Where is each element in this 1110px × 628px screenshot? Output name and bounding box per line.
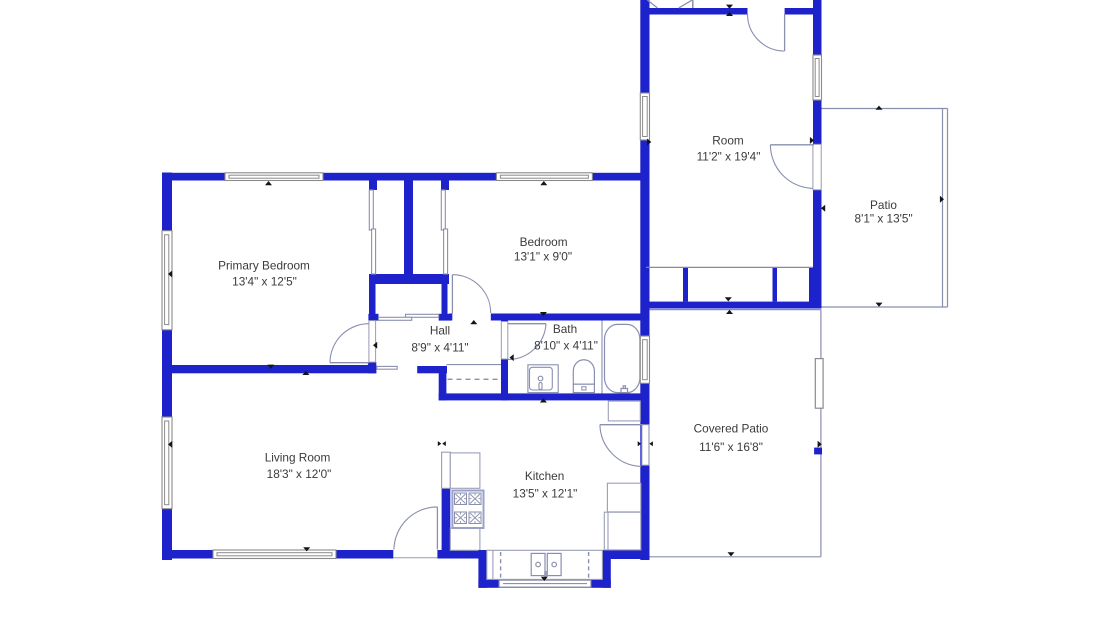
svg-text:Kitchen: Kitchen [525,469,564,483]
svg-text:13'5" x 12'1": 13'5" x 12'1" [513,487,578,501]
svg-text:Bath: Bath [553,322,577,336]
svg-text:Hall: Hall [430,324,450,338]
svg-text:13'4" x 12'5": 13'4" x 12'5" [232,275,297,289]
svg-text:Bedroom: Bedroom [520,235,568,249]
svg-text:18'3" x 12'0": 18'3" x 12'0" [267,467,332,481]
svg-text:8'1" x 13'5": 8'1" x 13'5" [855,212,913,226]
svg-text:13'1" x 9'0": 13'1" x 9'0" [514,250,572,264]
svg-text:Primary Bedroom: Primary Bedroom [218,259,310,273]
svg-text:8'10" x 4'11": 8'10" x 4'11" [534,339,598,353]
svg-text:Room: Room [712,134,744,148]
svg-text:Covered Patio: Covered Patio [694,422,769,436]
svg-text:Living Room: Living Room [265,451,331,465]
svg-text:11'6" x 16'8": 11'6" x 16'8" [699,440,763,454]
svg-text:8'9" x 4'11": 8'9" x 4'11" [411,341,468,355]
svg-text:11'2" x 19'4": 11'2" x 19'4" [697,150,761,164]
svg-text:Patio: Patio [870,198,897,212]
